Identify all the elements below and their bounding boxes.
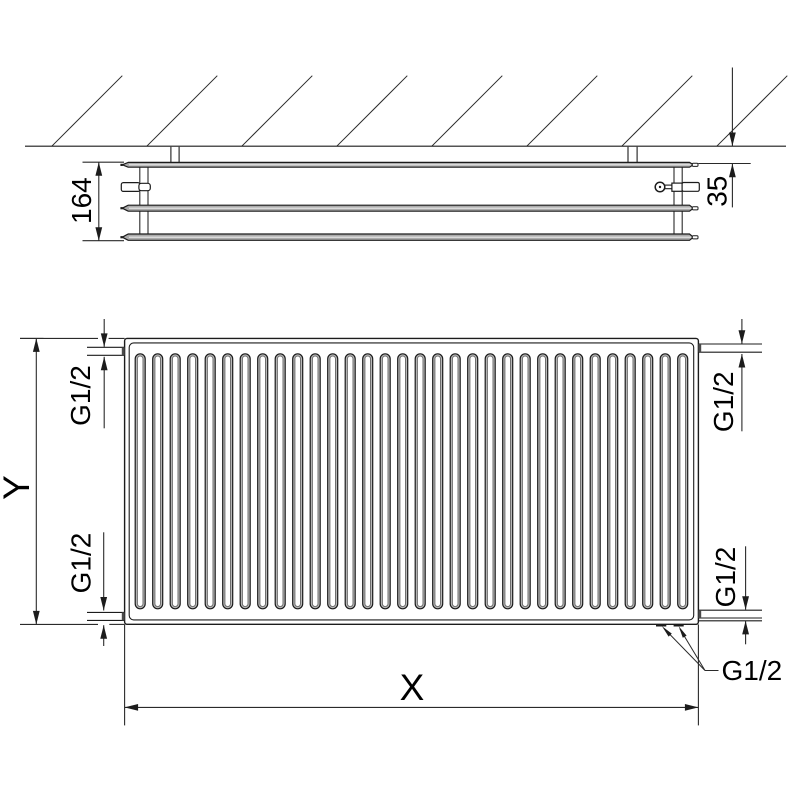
svg-text:G1/2: G1/2: [722, 655, 783, 686]
svg-text:Y: Y: [0, 475, 37, 500]
svg-text:G1/2: G1/2: [66, 533, 97, 594]
svg-text:164: 164: [66, 177, 97, 224]
svg-text:35: 35: [701, 176, 732, 207]
svg-text:G1/2: G1/2: [65, 365, 96, 426]
svg-text:G1/2: G1/2: [708, 371, 739, 432]
svg-text:G1/2: G1/2: [710, 547, 741, 608]
svg-text:X: X: [400, 667, 425, 708]
